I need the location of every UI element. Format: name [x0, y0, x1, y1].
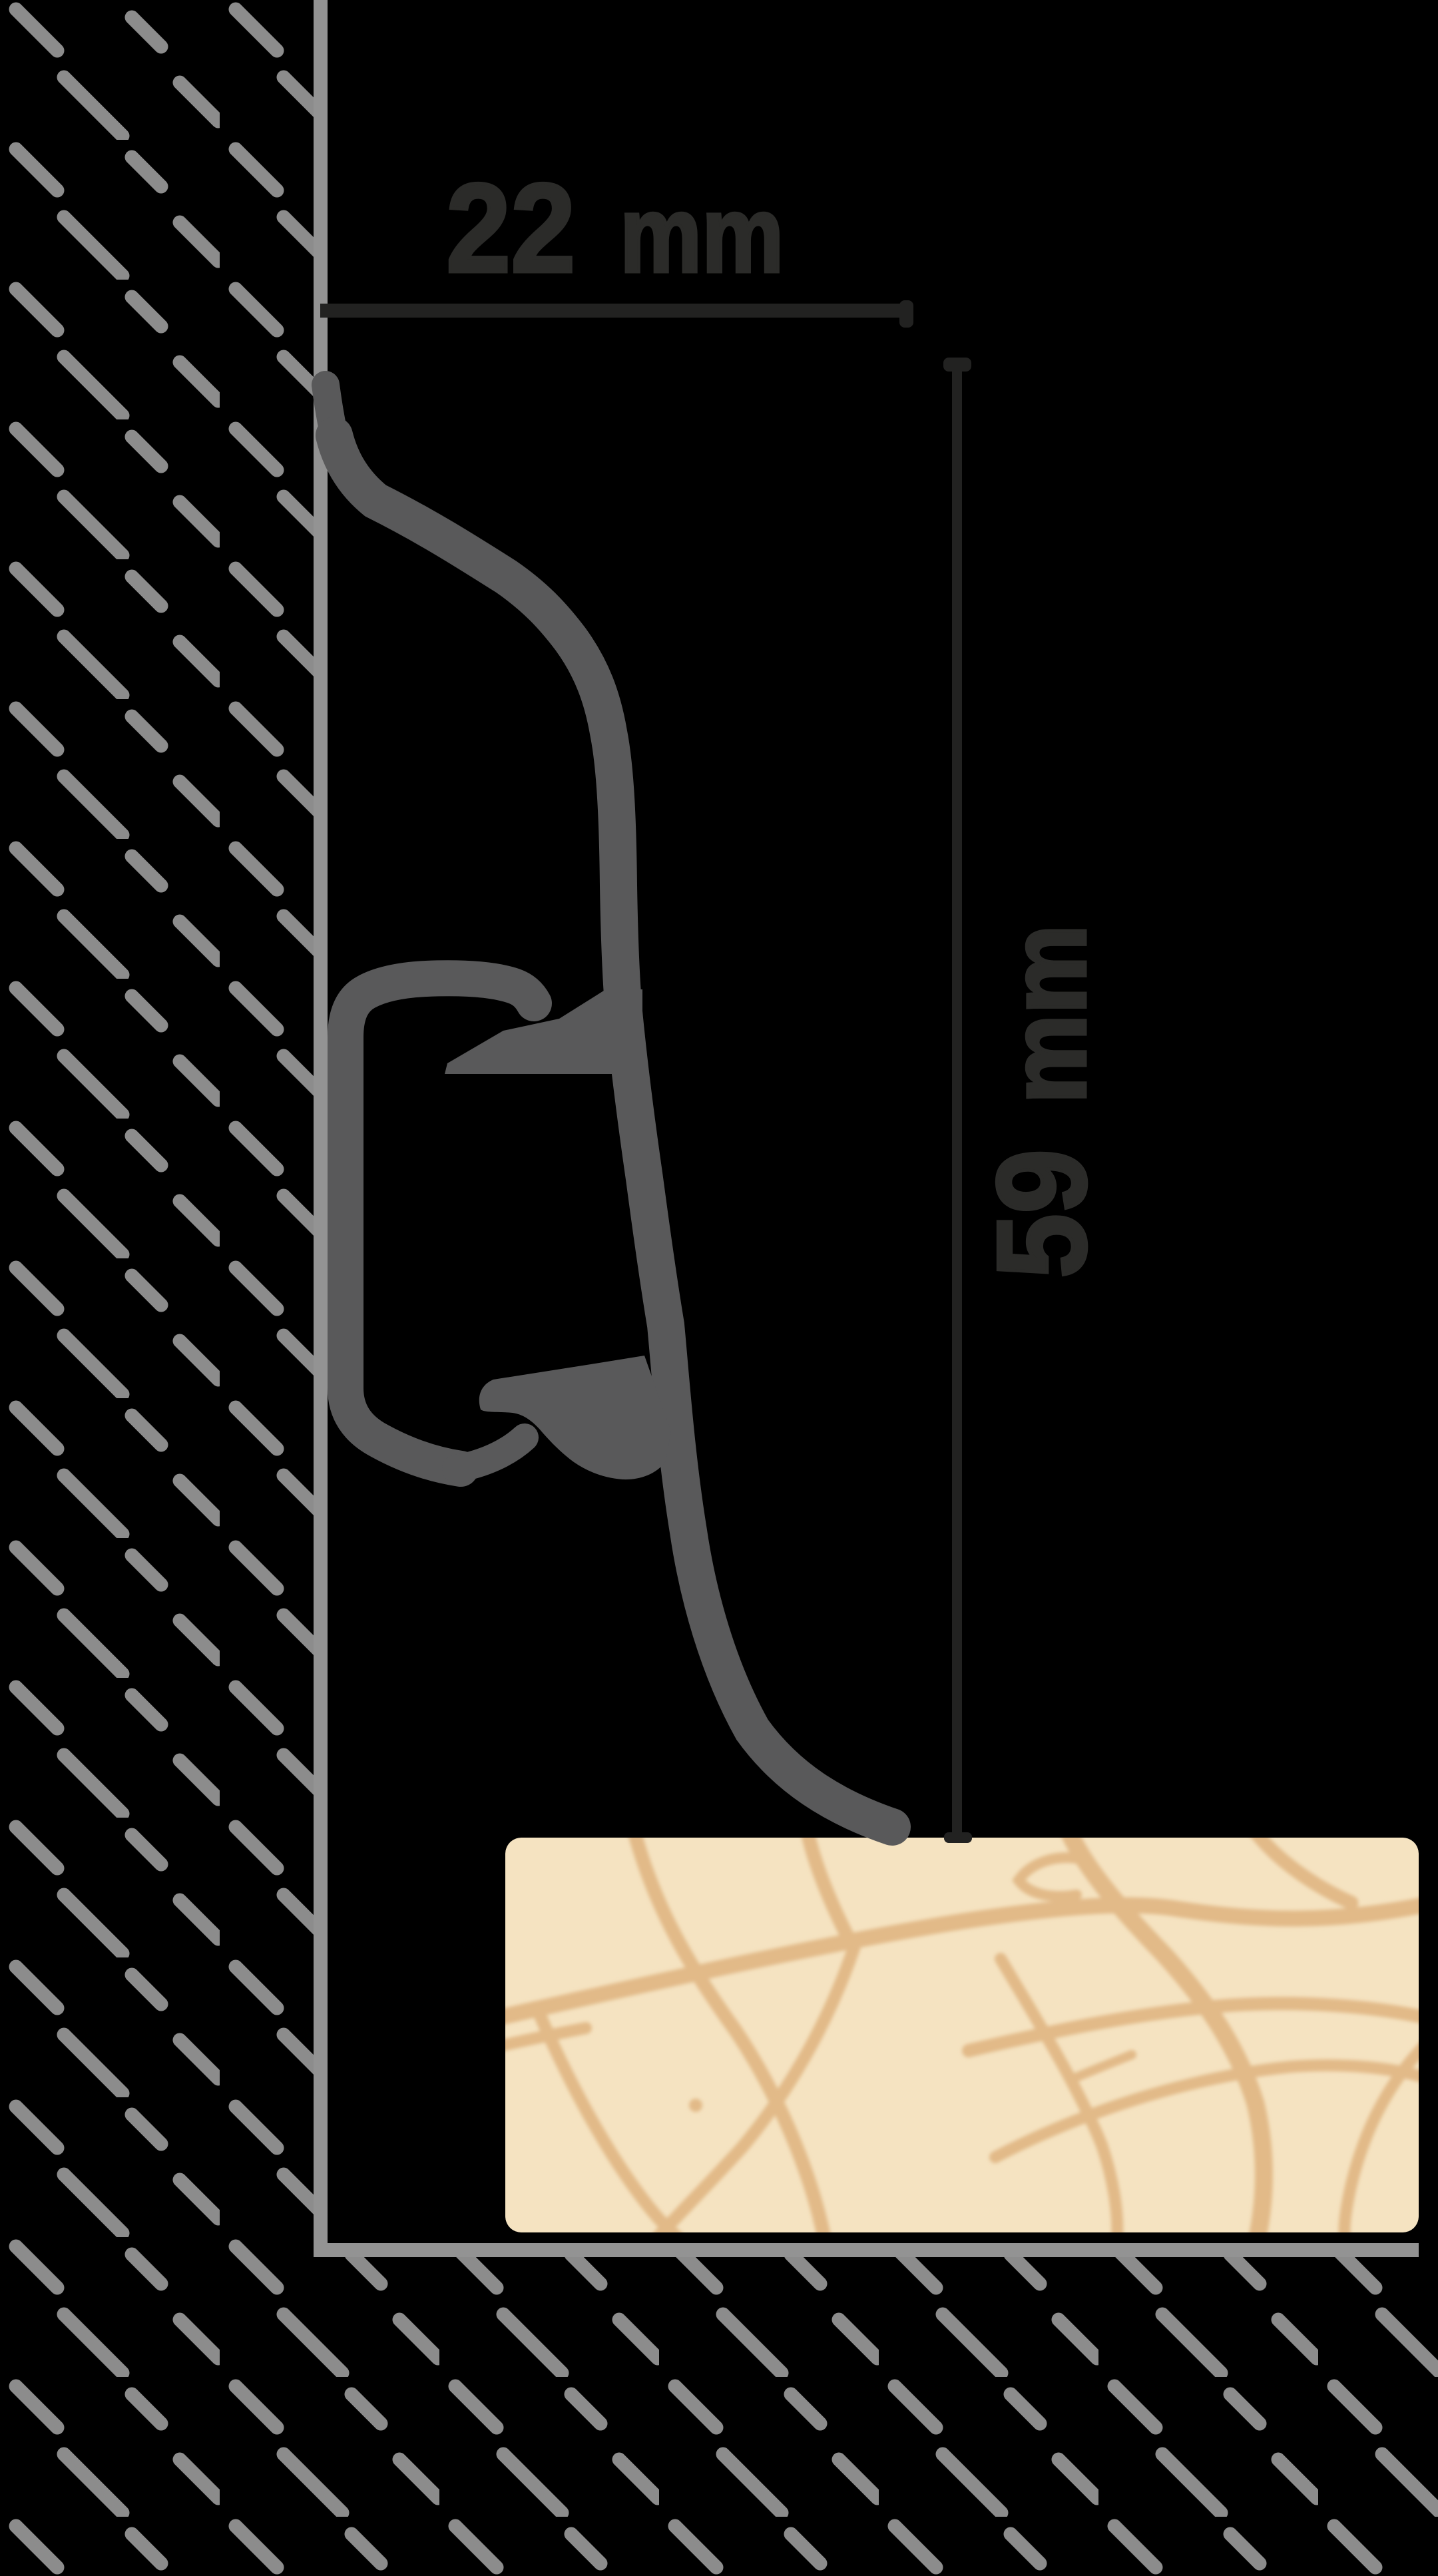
svg-text:mm: mm: [988, 924, 1108, 1104]
svg-text:22: 22: [446, 157, 575, 298]
svg-text:mm: mm: [620, 174, 784, 295]
svg-text:59: 59: [971, 1149, 1112, 1278]
